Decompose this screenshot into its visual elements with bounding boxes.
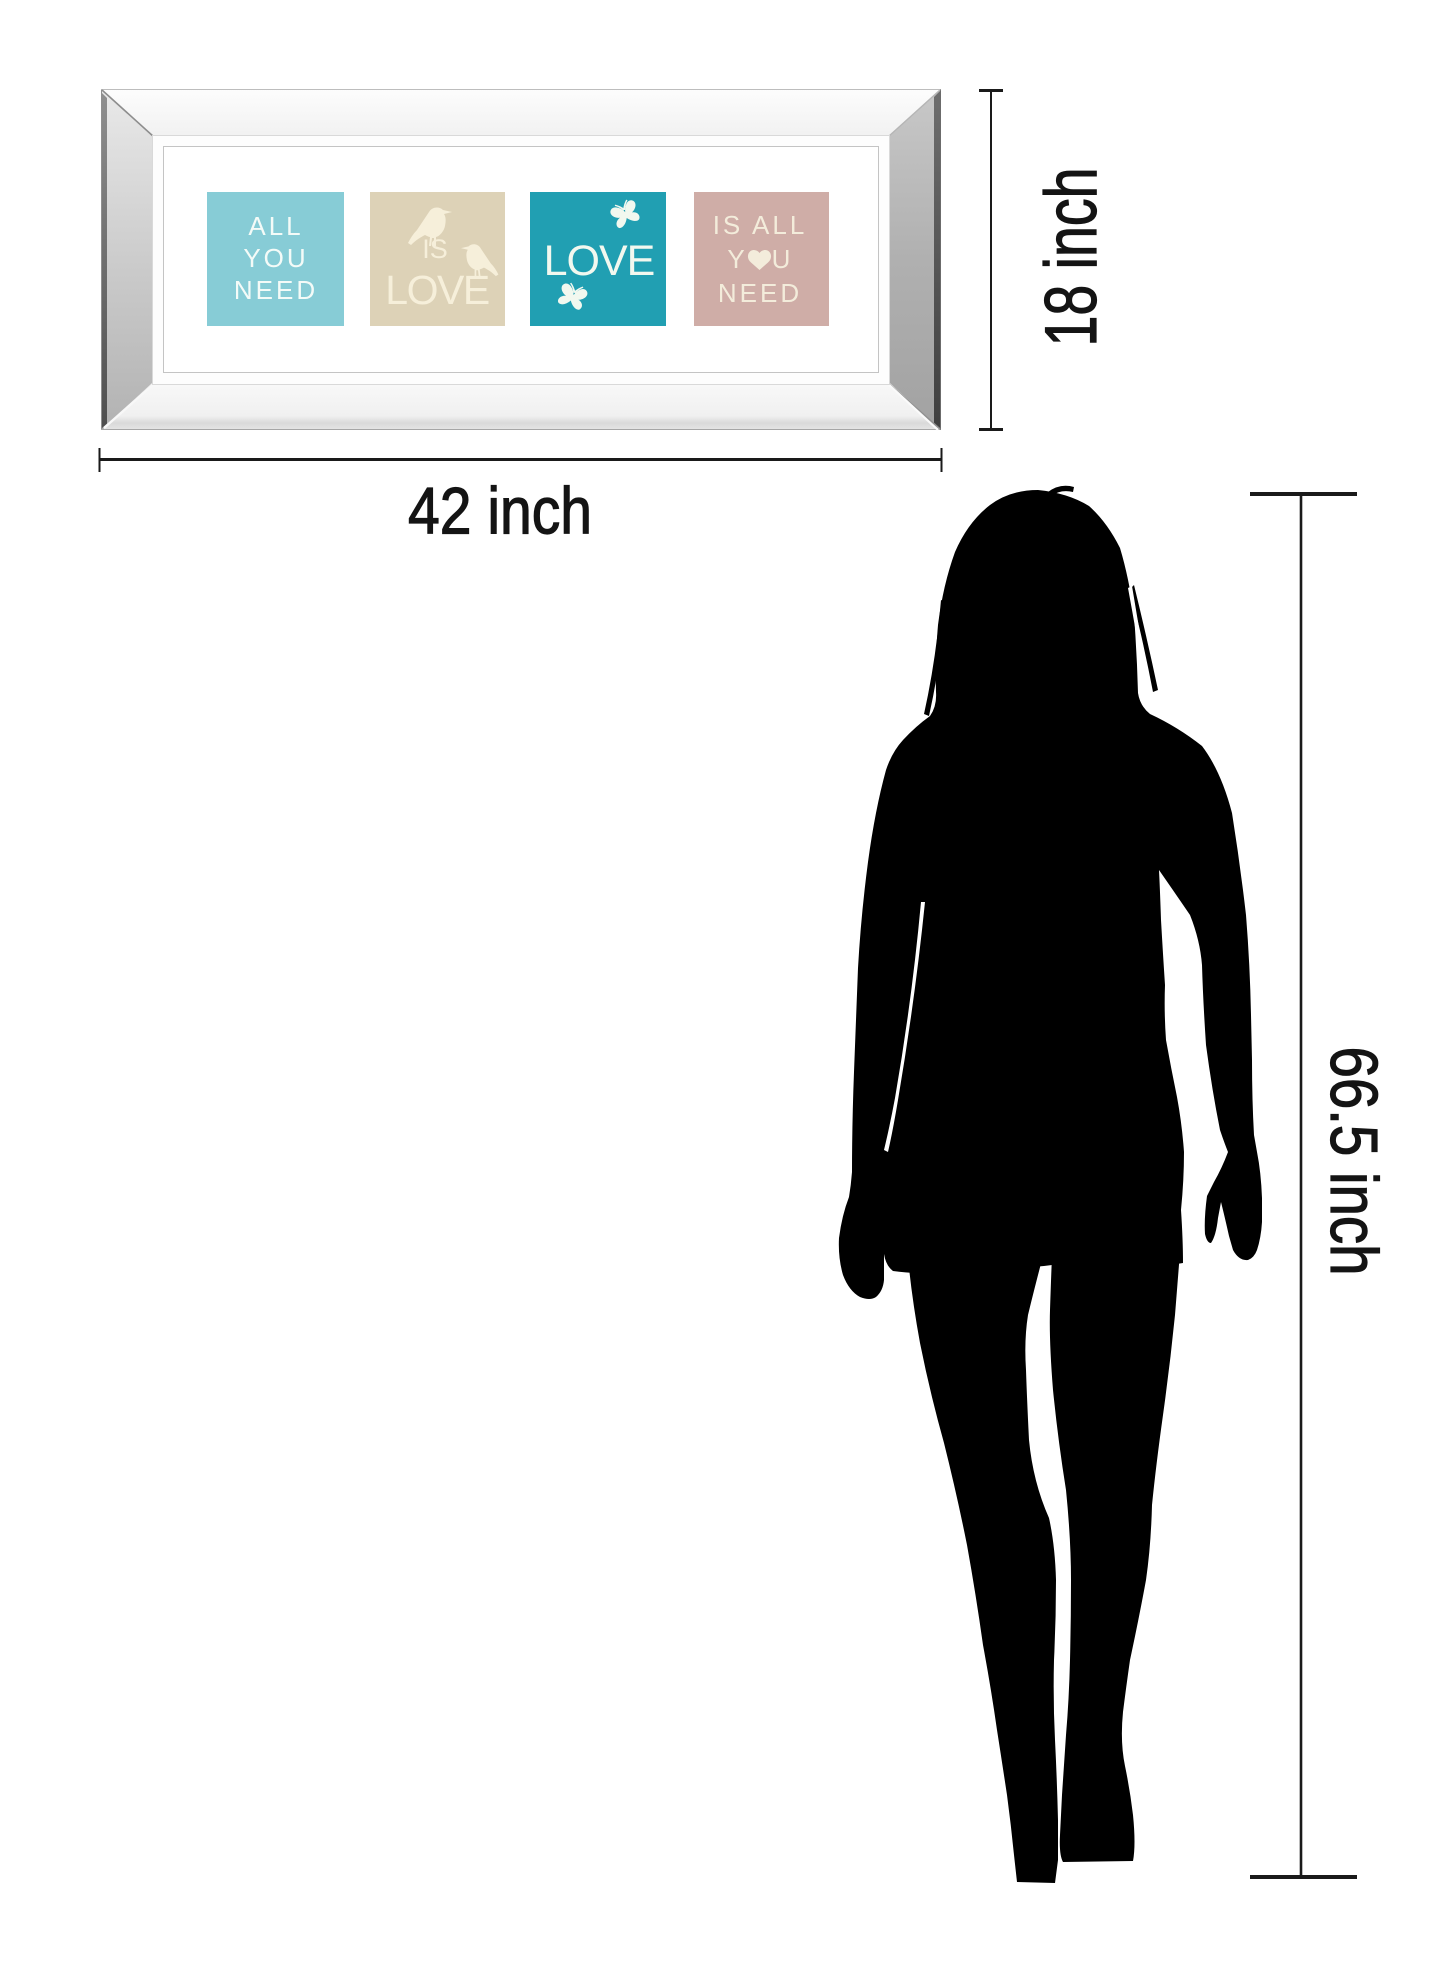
svg-text:U: U <box>772 244 791 274</box>
svg-text:IS: IS <box>422 234 448 264</box>
svg-text:YOU: YOU <box>243 243 308 273</box>
svg-text:NEED: NEED <box>234 275 318 305</box>
svg-text:IS ALL: IS ALL <box>713 210 808 240</box>
svg-text:18 inch: 18 inch <box>1031 168 1112 347</box>
svg-text:LOVE: LOVE <box>544 237 655 285</box>
svg-text:ALL: ALL <box>248 211 303 241</box>
svg-text:66.5 inch: 66.5 inch <box>1316 1047 1391 1276</box>
svg-text:LOVE: LOVE <box>385 267 489 313</box>
svg-text:NEED: NEED <box>718 278 802 308</box>
svg-text:Y: Y <box>727 244 744 274</box>
svg-text:42 inch: 42 inch <box>408 474 592 548</box>
